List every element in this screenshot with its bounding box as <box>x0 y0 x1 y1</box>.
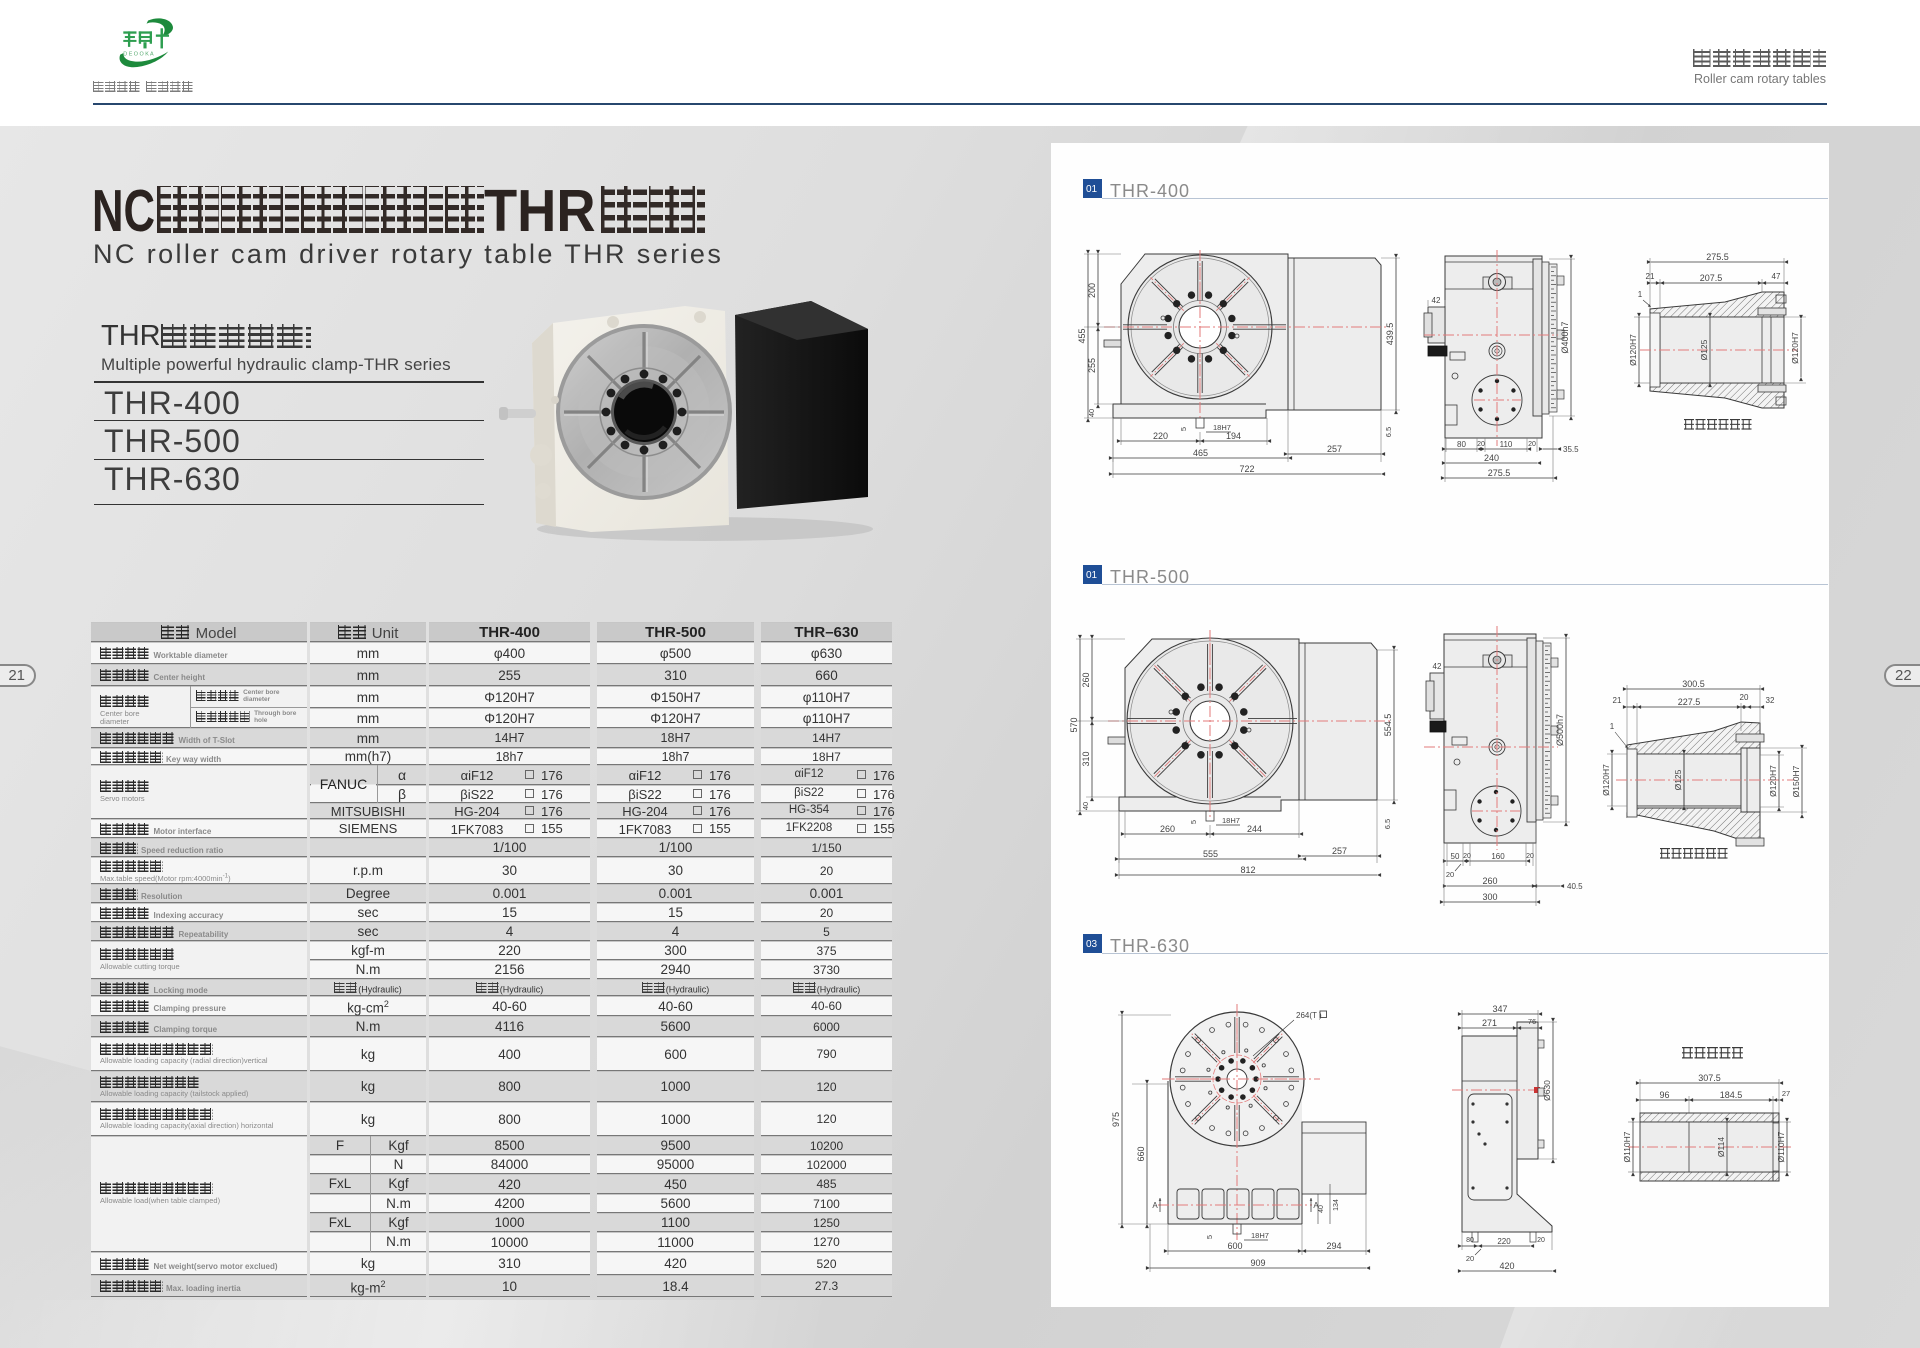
svg-text:20: 20 <box>1526 853 1534 860</box>
svg-text:20: 20 <box>1446 870 1454 879</box>
svg-text:27: 27 <box>1782 1089 1790 1098</box>
svg-text:35.5: 35.5 <box>1563 445 1579 454</box>
svg-text:6.5: 6.5 <box>1383 819 1392 829</box>
svg-text:227.5: 227.5 <box>1678 697 1701 707</box>
svg-text:465: 465 <box>1193 448 1208 458</box>
svg-text:Ø120H7: Ø120H7 <box>1601 764 1611 796</box>
svg-text:260: 260 <box>1160 824 1175 834</box>
svg-text:554.5: 554.5 <box>1383 714 1393 737</box>
svg-text:420: 420 <box>1499 1261 1514 1271</box>
svg-text:300: 300 <box>1482 892 1497 902</box>
svg-text:660: 660 <box>1136 1146 1146 1161</box>
svg-text:6.5: 6.5 <box>1384 427 1393 437</box>
svg-text:18H7: 18H7 <box>1251 1231 1269 1240</box>
svg-text:439.5: 439.5 <box>1385 323 1395 346</box>
svg-text:Ø110H7: Ø110H7 <box>1622 1131 1632 1162</box>
svg-text:5: 5 <box>1205 1235 1214 1239</box>
svg-text:5: 5 <box>1189 820 1198 824</box>
svg-text:42: 42 <box>1433 662 1442 671</box>
svg-text:20: 20 <box>1528 441 1536 448</box>
svg-text:184.5: 184.5 <box>1720 1090 1743 1100</box>
svg-text:47: 47 <box>1772 272 1781 281</box>
svg-text:Ø125: Ø125 <box>1699 339 1709 360</box>
svg-text:271: 271 <box>1482 1018 1497 1028</box>
svg-text:275.5: 275.5 <box>1488 468 1511 478</box>
svg-text:20: 20 <box>1466 1254 1474 1263</box>
svg-text:722: 722 <box>1239 464 1254 474</box>
svg-text:20: 20 <box>1463 853 1471 860</box>
svg-text:110: 110 <box>1500 440 1513 449</box>
svg-text:20: 20 <box>1537 1237 1545 1244</box>
svg-text:244: 244 <box>1247 824 1262 834</box>
svg-text:307.5: 307.5 <box>1698 1073 1721 1083</box>
svg-text:32: 32 <box>1766 696 1775 705</box>
svg-text:Ø120H7: Ø120H7 <box>1768 765 1778 797</box>
svg-text:300.5: 300.5 <box>1682 679 1705 689</box>
svg-text:18H7: 18H7 <box>1222 816 1240 825</box>
svg-text:40.5: 40.5 <box>1567 882 1583 891</box>
svg-text:21: 21 <box>1613 696 1622 705</box>
svg-text:260: 260 <box>1482 876 1497 886</box>
svg-text:975: 975 <box>1111 1112 1121 1127</box>
svg-text:220: 220 <box>1153 431 1168 441</box>
svg-text:1: 1 <box>1610 722 1615 731</box>
svg-text:240: 240 <box>1484 453 1499 463</box>
svg-text:96: 96 <box>1659 1090 1669 1100</box>
svg-text:275.5: 275.5 <box>1706 252 1729 262</box>
svg-text:Ø120H7: Ø120H7 <box>1790 332 1800 364</box>
svg-text:260: 260 <box>1081 672 1091 687</box>
svg-text:264(T ): 264(T ) <box>1296 1011 1322 1020</box>
svg-text:207.5: 207.5 <box>1700 273 1723 283</box>
svg-text:Ø150H7: Ø150H7 <box>1791 765 1801 797</box>
svg-text:D E O O K A: D E O O K A <box>123 51 154 57</box>
svg-text:20: 20 <box>1740 693 1749 702</box>
svg-text:80: 80 <box>1457 440 1466 449</box>
svg-text:194: 194 <box>1226 431 1241 441</box>
svg-text:40: 40 <box>1081 802 1090 810</box>
svg-text:347: 347 <box>1492 1004 1507 1014</box>
svg-text:21: 21 <box>1646 272 1655 281</box>
svg-text:294: 294 <box>1326 1241 1341 1251</box>
svg-text:909: 909 <box>1250 1258 1265 1268</box>
svg-text:200: 200 <box>1087 283 1097 298</box>
svg-text:257: 257 <box>1327 444 1342 454</box>
svg-text:50: 50 <box>1451 852 1460 861</box>
svg-text:42: 42 <box>1432 296 1441 305</box>
svg-text:Ø630: Ø630 <box>1542 1080 1552 1101</box>
svg-text:A: A <box>1152 1201 1158 1210</box>
svg-text:76: 76 <box>1528 1017 1536 1026</box>
svg-text:570: 570 <box>1069 717 1079 732</box>
svg-text:134: 134 <box>1333 1199 1340 1211</box>
svg-text:555: 555 <box>1203 849 1218 859</box>
svg-text:Ø114: Ø114 <box>1716 1137 1726 1157</box>
svg-text:40: 40 <box>1318 1205 1325 1213</box>
svg-text:80: 80 <box>1466 1237 1474 1244</box>
svg-text:1: 1 <box>1638 290 1643 299</box>
svg-text:20: 20 <box>1477 441 1485 448</box>
svg-text:40: 40 <box>1087 409 1096 417</box>
svg-text:Ø110H7: Ø110H7 <box>1776 1131 1786 1162</box>
svg-text:455: 455 <box>1077 328 1087 343</box>
svg-text:257: 257 <box>1332 846 1347 856</box>
svg-text:310: 310 <box>1081 751 1091 766</box>
svg-text:Ø125: Ø125 <box>1673 769 1683 790</box>
svg-text:812: 812 <box>1240 865 1255 875</box>
svg-text:Ø120H7: Ø120H7 <box>1628 334 1638 366</box>
svg-text:Ø400h7: Ø400h7 <box>1560 321 1570 353</box>
svg-text:Ø500h7: Ø500h7 <box>1555 714 1565 746</box>
svg-text:600: 600 <box>1227 1241 1242 1251</box>
svg-text:255: 255 <box>1087 358 1097 373</box>
svg-text:160: 160 <box>1491 852 1505 861</box>
svg-text:5: 5 <box>1179 427 1188 431</box>
svg-text:220: 220 <box>1497 1237 1511 1246</box>
